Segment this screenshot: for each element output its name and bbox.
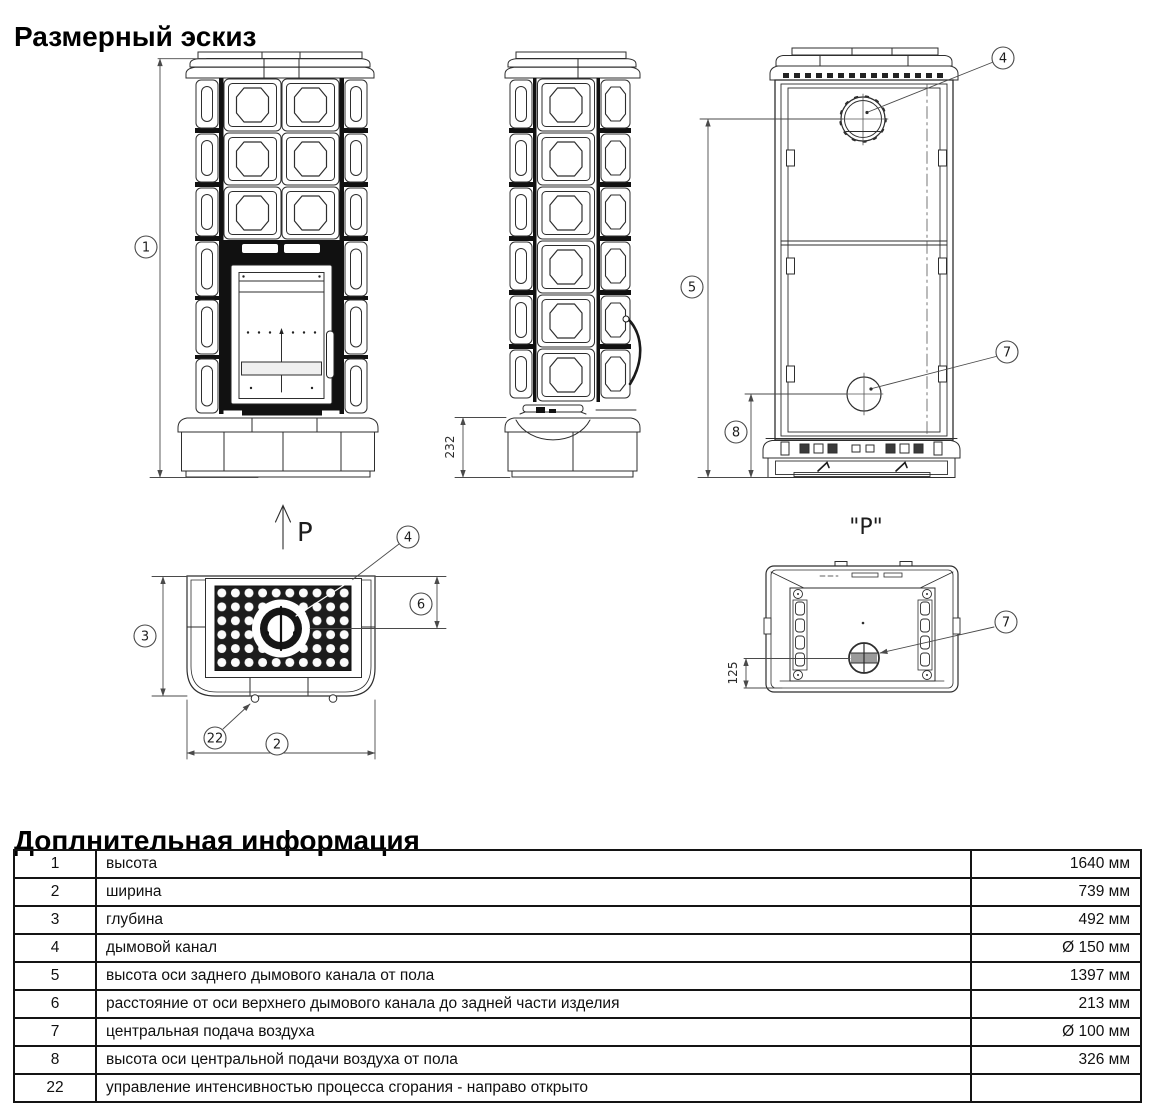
- table-row: 7 центральная подача воздуха Ø 100 мм: [14, 1018, 1141, 1046]
- svg-text:7: 7: [1003, 346, 1011, 361]
- table-row: 4 дымовой канал Ø 150 мм: [14, 934, 1141, 962]
- row-num: 5: [14, 962, 96, 990]
- svg-text:5: 5: [688, 281, 696, 296]
- row-value: 326 мм: [971, 1046, 1141, 1074]
- svg-text:7: 7: [1002, 616, 1010, 631]
- row-num: 6: [14, 990, 96, 1018]
- svg-text:3: 3: [141, 630, 149, 645]
- view-p-label: "P": [849, 515, 883, 540]
- callout-3: 3: [134, 625, 156, 647]
- row-desc: дымовой канал: [96, 934, 971, 962]
- table-row: 2 ширина 739 мм: [14, 878, 1141, 906]
- row-desc: управление интенсивностью процесса сгора…: [96, 1074, 971, 1102]
- rear-view: 5 8 4 7: [681, 47, 1018, 478]
- row-value: 213 мм: [971, 990, 1141, 1018]
- view-direction-label: P: [297, 518, 313, 548]
- row-value: 1640 мм: [971, 850, 1141, 878]
- row-desc: ширина: [96, 878, 971, 906]
- dimensional-sketch: 1: [0, 0, 1152, 800]
- table-row: 5 высота оси заднего дымового канала от …: [14, 962, 1141, 990]
- svg-text:22: 22: [207, 732, 224, 747]
- row-value: 492 мм: [971, 906, 1141, 934]
- svg-text:1: 1: [142, 241, 150, 256]
- row-value: 739 мм: [971, 878, 1141, 906]
- table-row: 8 высота оси центральной подачи воздуха …: [14, 1046, 1141, 1074]
- row-desc: высота оси заднего дымового канала от по…: [96, 962, 971, 990]
- callout-5: 5: [681, 276, 703, 298]
- svg-text:2: 2: [273, 738, 281, 753]
- row-num: 3: [14, 906, 96, 934]
- row-num: 7: [14, 1018, 96, 1046]
- dim-depth: 3: [134, 577, 187, 697]
- svg-text:8: 8: [732, 426, 740, 441]
- callout-22: 22: [204, 704, 250, 749]
- row-value: Ø 150 мм: [971, 934, 1141, 962]
- row-value: [971, 1074, 1141, 1102]
- row-value: Ø 100 мм: [971, 1018, 1141, 1046]
- table-row: 22 управление интенсивностью процесса сг…: [14, 1074, 1141, 1102]
- bottom-view-p: "P": [726, 515, 1017, 692]
- table-row: 3 глубина 492 мм: [14, 906, 1141, 934]
- row-num: 8: [14, 1046, 96, 1074]
- dim-base-height: 232: [443, 418, 510, 478]
- svg-text:4: 4: [404, 531, 412, 546]
- row-desc: расстояние от оси верхнего дымового кана…: [96, 990, 971, 1018]
- front-view: 1: [135, 52, 378, 478]
- row-num: 1: [14, 850, 96, 878]
- row-desc: центральная подача воздуха: [96, 1018, 971, 1046]
- svg-text:6: 6: [417, 598, 425, 613]
- view-direction-arrow: P: [276, 506, 313, 550]
- row-num: 22: [14, 1074, 96, 1102]
- top-view: P 3: [134, 506, 446, 760]
- row-value: 1397 мм: [971, 962, 1141, 990]
- row-num: 2: [14, 878, 96, 906]
- svg-text:232: 232: [443, 436, 457, 459]
- row-desc: высота: [96, 850, 971, 878]
- row-desc: глубина: [96, 906, 971, 934]
- callout-8: 8: [725, 421, 747, 443]
- svg-text:4: 4: [999, 52, 1007, 67]
- callout-1: 1: [135, 236, 157, 258]
- callout-2: 2: [266, 733, 288, 755]
- table-row: 1 высота 1640 мм: [14, 850, 1141, 878]
- table-row: 6 расстояние от оси верхнего дымового ка…: [14, 990, 1141, 1018]
- side-view: 232: [443, 52, 640, 478]
- row-desc: высота оси центральной подачи воздуха от…: [96, 1046, 971, 1074]
- row-num: 4: [14, 934, 96, 962]
- svg-text:125: 125: [726, 662, 740, 685]
- additional-info-table: 1 высота 1640 мм 2 ширина 739 мм 3 глуби…: [13, 849, 1142, 1103]
- callout-6: 6: [410, 593, 432, 615]
